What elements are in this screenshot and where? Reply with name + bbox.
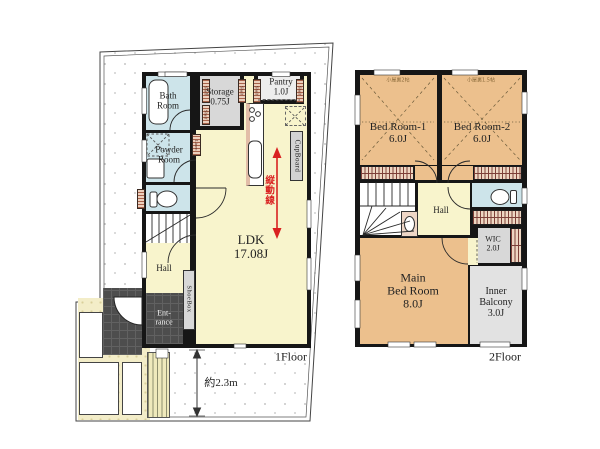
room-label-bath: Bath Room — [157, 91, 179, 110]
flow-arrow — [273, 147, 282, 239]
attic-label-bed2: 小屋裏1.5帖 — [467, 78, 495, 83]
dimension-line — [189, 350, 205, 416]
room-label-hall-2f: Hall — [433, 206, 449, 216]
room-label-storage: Storage 0.75J — [206, 87, 234, 106]
room-label-powder: Powder Room — [155, 145, 183, 164]
room-label-bed1: Bed Room-1 6.0J — [370, 122, 427, 146]
room-label-main-bed: Main Bed Room 8.0J — [387, 272, 439, 311]
dimension-label: 約2.3m — [204, 378, 237, 390]
room-label-ldk: LDK 17.08J — [234, 233, 268, 261]
floor1-caption: 1Floor — [275, 351, 307, 364]
flow-line-label: 縦動線 — [263, 175, 273, 205]
room-label-hall-1f: Hall — [156, 264, 172, 274]
room-label-pantry: Pantry 1.0J — [269, 77, 293, 96]
room-label-wic: WIC 2.0J — [485, 235, 501, 252]
room-label-entrance: Ent- rance — [155, 309, 172, 326]
room-label-shoebox: ShoeBox — [185, 285, 192, 312]
floor-plan-image: Shelf Shelf Shelf Shelf Shelf Linen — [0, 0, 600, 449]
plan-linework — [0, 0, 600, 449]
attic-label-bed1: 小屋裏2帖 — [386, 78, 409, 83]
room-label-bed2: Bed Room-2 6.0J — [454, 122, 511, 146]
floor2-caption: 2Floor — [489, 351, 521, 364]
room-label-inner-balcony: Inner Balcony 3.0J — [479, 287, 512, 319]
room-label-cupboard: CupBoard — [293, 140, 301, 173]
